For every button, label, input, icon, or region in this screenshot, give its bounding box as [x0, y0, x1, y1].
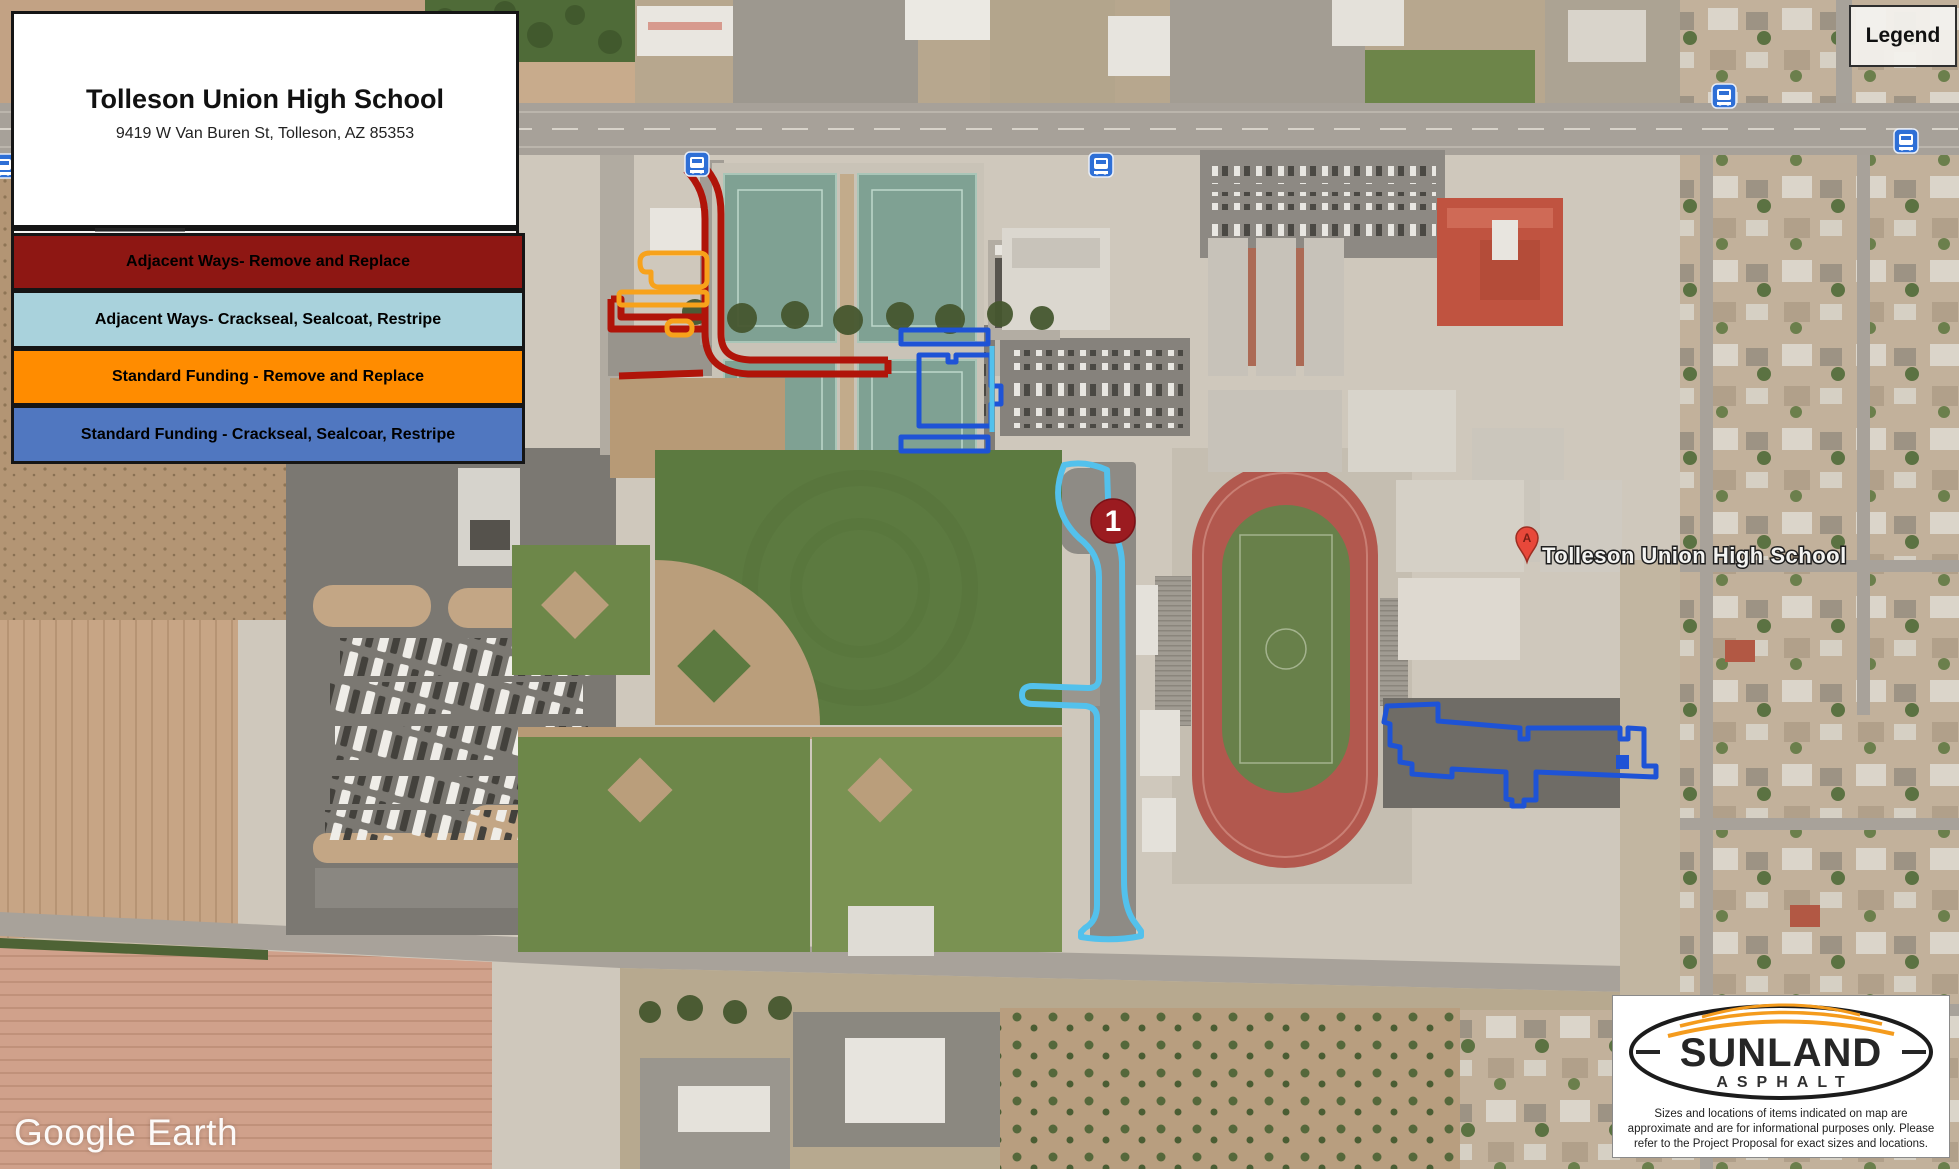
- legend-item-adjacent-remove-replace: Adjacent Ways- Remove and Replace: [11, 233, 525, 291]
- clipped-text-fragment: [95, 228, 185, 232]
- place-label: Tolleson Union High School: [1542, 543, 1847, 568]
- bus-stop-icon: [1894, 129, 1918, 153]
- bus-stop-icon: [1089, 153, 1113, 177]
- site-address: 9419 W Van Buren St, Tolleson, AZ 85353: [14, 125, 516, 143]
- legend-title-box: Legend: [1849, 5, 1957, 67]
- site-map-screenshot: A Tolleson Union High School 1 Tolleson …: [0, 0, 1959, 1169]
- sunland-asphalt-logo: SUNLAND ASPHALT: [1616, 1000, 1946, 1100]
- legend-item-adjacent-crackseal: Adjacent Ways- Crackseal, Sealcoat, Rest…: [11, 290, 525, 349]
- legend-item-label: Adjacent Ways- Remove and Replace: [126, 253, 410, 271]
- info-panel: Tolleson Union High School 9419 W Van Bu…: [11, 11, 519, 228]
- legend-item-standard-remove-replace: Standard Funding - Remove and Replace: [11, 348, 525, 406]
- bus-stop-icon: [1712, 84, 1736, 108]
- legend-item-standard-crackseal: Standard Funding - Crackseal, Sealcoar, …: [11, 405, 525, 464]
- legend-item-label: Standard Funding - Crackseal, Sealcoar, …: [81, 426, 455, 444]
- place-pin-letter: A: [1523, 531, 1532, 545]
- google-earth-watermark: Google Earth: [14, 1112, 238, 1154]
- legend-title: Legend: [1866, 24, 1941, 48]
- brand-name: SUNLAND: [1680, 1031, 1883, 1075]
- map-disclaimer: Sizes and locations of items indicated o…: [1613, 1107, 1949, 1153]
- legend-item-label: Standard Funding - Remove and Replace: [112, 368, 424, 386]
- site-title: Tolleson Union High School: [14, 84, 516, 115]
- legend-item-label: Adjacent Ways- Crackseal, Sealcoat, Rest…: [95, 311, 441, 329]
- brand-subtitle: ASPHALT: [1716, 1074, 1853, 1091]
- area-marker-1: 1: [1091, 499, 1135, 543]
- bus-stop-icon: [685, 152, 709, 176]
- contractor-box: SUNLAND ASPHALT Sizes and locations of i…: [1612, 995, 1950, 1158]
- area-marker-number: 1: [1105, 505, 1122, 538]
